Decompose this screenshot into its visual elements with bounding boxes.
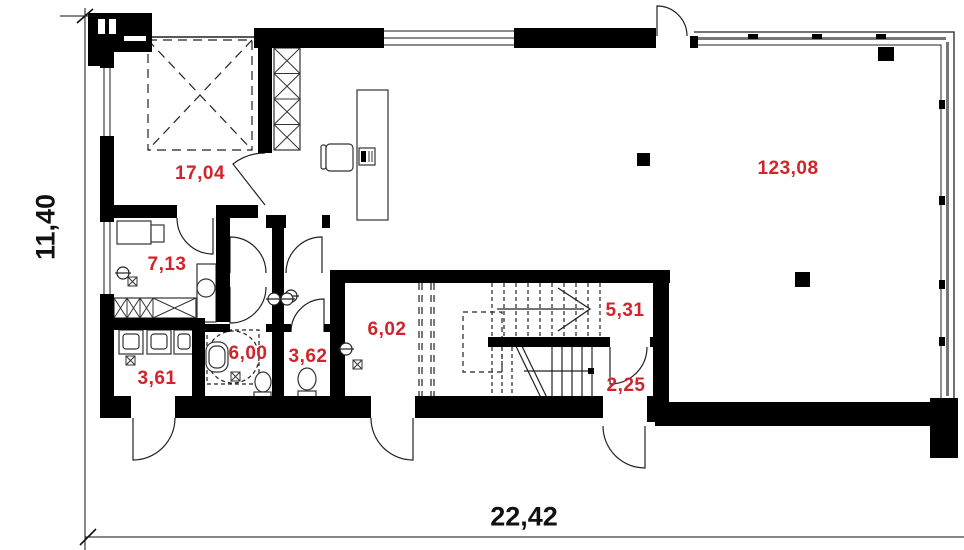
door-corridor-left-upper [230,237,266,273]
wall-big-room-bottom [655,402,958,426]
column [637,153,650,166]
office-chair-back [321,145,326,169]
wall-room-3-61-top [100,318,192,330]
window-top [384,31,514,45]
toilet-bathroom [255,372,271,392]
stairs-up-arrow [497,288,590,331]
wall-bathroom-top [205,324,230,332]
chimney-flue-slit [98,19,105,34]
mullion [876,34,886,39]
floor-plan-drawing [0,0,964,550]
wall-exterior-top [514,28,656,48]
column [878,47,894,61]
bathroom-sink-bowl [209,346,225,368]
wall-stair-landing [650,337,657,347]
dimension-width-label: 22,42 [490,502,558,533]
wall-wc-top [284,324,291,332]
mullion [939,280,945,289]
wall-corridor-top [322,215,330,228]
chimney-flue-slit [124,36,146,41]
wall-room-17-04-right [258,28,272,153]
wall-hall-south [330,270,670,283]
curtain-wall-glazing [694,32,954,398]
mullion [748,34,758,39]
glazing-outer-line [694,32,954,398]
office-chair [326,144,353,171]
wall-exterior-top [254,28,384,48]
column [795,272,810,287]
floor-drain-icon [231,372,240,381]
floor-drain-icon [353,360,362,369]
wall-stair-landing [488,337,610,347]
floor-drain-icon [126,356,135,365]
door-wc [291,299,324,332]
dimension-height-label: 11,40 [31,194,62,260]
door-exterior-vestibule [603,426,645,468]
wall-bathroom-right [272,324,284,396]
wall-exterior-left [100,52,114,68]
glazing-end-block [690,36,698,48]
glazing-inner-line [694,45,941,398]
door-corridor-right-upper [286,237,322,273]
washbasin-3-bowl [178,334,190,349]
room-area-label: 6,02 [368,319,407,341]
wall-wc-top [324,324,330,332]
wall-room-3-61-right [192,318,205,396]
void-opening-cross [148,40,252,150]
room-area-label: 7,13 [148,254,187,276]
computer-screen [361,151,366,162]
walls [88,13,958,458]
wall-corner-bottom-right [930,398,958,458]
room-area-label: 5,31 [606,300,645,322]
mullion [939,196,945,205]
mullion [939,337,945,346]
wall-room-7-13-right [216,215,230,322]
glazing-mullions [748,34,945,346]
ceiling-opening-edge [419,283,434,396]
wall-exterior-bottom [100,396,131,418]
door-corridor-left-lower [230,287,266,323]
door-room-7-13 [177,218,213,254]
door-room-17-04 [233,153,265,205]
room-area-label: 6,00 [229,343,268,365]
wardrobe [114,298,196,318]
wall-exterior-bottom [415,396,603,418]
desk-small [117,221,151,244]
stair-lower-flight-dashed-treads [492,347,512,396]
washbasin-2-bowl [151,334,167,349]
wall-room-7-13-top [100,205,177,218]
desk-small-return [151,225,164,242]
mullion [939,100,945,109]
wall-exterior-bottom [175,396,371,418]
room-area-label: 17,04 [175,163,225,185]
chimney-flue-slit [109,19,116,34]
window-left-upper [104,66,110,136]
mullion [812,34,822,39]
stair-handrail-post [588,368,594,374]
wall-corridor-divider [272,218,284,324]
toilet-wc [298,368,316,390]
door-exterior-left [133,418,175,460]
wall-room-6-02-left [330,283,345,396]
floor-plan: 17,04 7,13 3,61 6,00 3,62 6,02 5,31 2,25… [0,0,964,550]
door-exterior-middle [371,418,413,460]
washbasin-1-bowl [123,334,139,349]
room-area-label: 3,61 [138,368,177,390]
floor-drain-icon [128,277,137,286]
room-area-label: 123,08 [757,158,818,180]
door-top-exterior [657,6,687,36]
window-left-lower [104,222,110,294]
room-area-label: 2,25 [607,375,646,397]
room-area-label: 3,62 [289,346,328,368]
